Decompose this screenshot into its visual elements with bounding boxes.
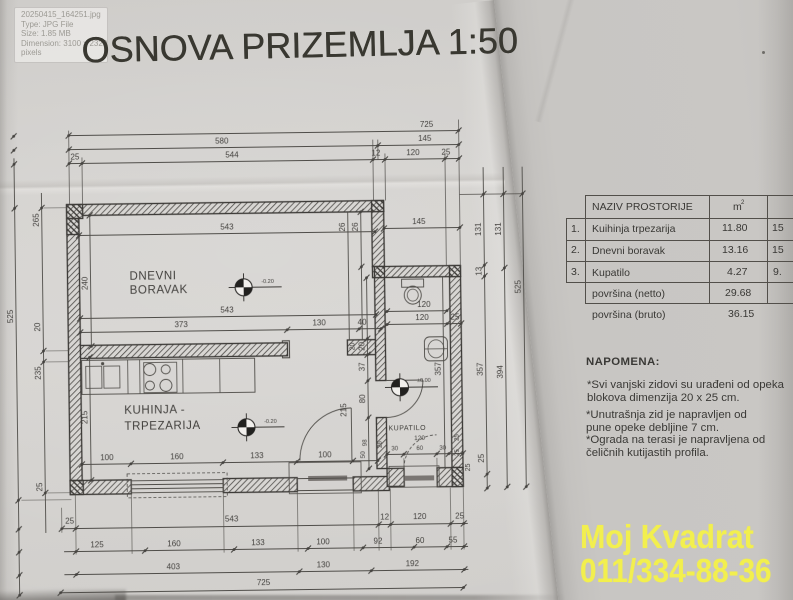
svg-text:25: 25 (70, 152, 80, 161)
svg-text:±0.00: ±0.00 (417, 378, 431, 384)
svg-text:20: 20 (33, 322, 42, 332)
svg-text:120: 120 (414, 435, 425, 442)
svg-text:25: 25 (451, 313, 461, 322)
svg-text:120: 120 (415, 313, 429, 322)
svg-text:125: 125 (90, 540, 104, 549)
svg-text:544: 544 (225, 150, 239, 159)
svg-text:25: 25 (65, 517, 75, 526)
svg-text:215: 215 (339, 403, 348, 417)
svg-text:394: 394 (496, 365, 505, 379)
svg-text:25: 25 (455, 434, 461, 441)
svg-text:240: 240 (80, 276, 89, 290)
svg-text:725: 725 (420, 120, 434, 129)
svg-text:BORAVAK: BORAVAK (130, 284, 188, 297)
svg-text:TRPEZARIJA: TRPEZARIJA (124, 420, 200, 433)
svg-text:120: 120 (406, 148, 420, 157)
svg-text:133: 133 (250, 451, 264, 460)
svg-text:525: 525 (6, 309, 15, 323)
svg-text:13: 13 (474, 266, 483, 276)
svg-text:26: 26 (378, 441, 384, 448)
svg-text:265: 265 (32, 213, 41, 227)
svg-text:25: 25 (441, 148, 451, 157)
svg-text:25: 25 (477, 453, 486, 463)
svg-text:543: 543 (220, 305, 234, 314)
svg-text:120: 120 (417, 300, 431, 309)
svg-text:98: 98 (363, 439, 369, 446)
svg-text:120: 120 (413, 512, 427, 521)
svg-text:525: 525 (514, 279, 523, 293)
svg-text:100: 100 (100, 453, 114, 462)
svg-text:235: 235 (34, 366, 43, 380)
svg-text:357: 357 (476, 362, 485, 376)
svg-text:100: 100 (318, 450, 332, 459)
svg-text:160: 160 (167, 539, 181, 548)
svg-text:-0.20: -0.20 (264, 419, 277, 425)
svg-text:12: 12 (380, 512, 390, 521)
svg-text:160: 160 (170, 452, 184, 461)
svg-text:725: 725 (257, 578, 271, 587)
svg-text:DNEVNI: DNEVNI (129, 270, 176, 283)
svg-text:25: 25 (455, 449, 461, 456)
svg-text:30: 30 (439, 446, 446, 452)
svg-text:130: 130 (312, 318, 326, 327)
svg-text:192: 192 (406, 559, 420, 568)
svg-text:50: 50 (360, 451, 367, 459)
svg-text:-0.20: -0.20 (261, 279, 274, 285)
svg-text:KUPATILO: KUPATILO (388, 425, 426, 432)
svg-text:215: 215 (80, 410, 89, 424)
svg-text:60: 60 (416, 446, 423, 452)
svg-text:55: 55 (448, 536, 458, 545)
svg-text:20: 20 (349, 342, 356, 350)
svg-text:100: 100 (316, 537, 330, 546)
svg-text:80: 80 (358, 394, 367, 404)
svg-text:131: 131 (474, 222, 483, 236)
svg-text:60: 60 (415, 536, 425, 545)
svg-text:25: 25 (465, 463, 472, 471)
svg-text:92: 92 (373, 537, 383, 546)
svg-text:133: 133 (251, 538, 265, 547)
svg-text:580: 580 (215, 137, 229, 146)
svg-text:26: 26 (338, 222, 347, 232)
svg-text:543: 543 (225, 514, 239, 523)
svg-text:373: 373 (174, 320, 188, 329)
svg-text:25: 25 (35, 482, 44, 492)
svg-text:KUHINJA -: KUHINJA - (124, 404, 185, 417)
svg-text:37: 37 (358, 362, 367, 372)
svg-text:30: 30 (391, 446, 398, 452)
svg-text:403: 403 (167, 562, 181, 571)
svg-text:20: 20 (357, 341, 366, 351)
svg-text:26: 26 (351, 222, 360, 232)
svg-text:357: 357 (434, 362, 443, 376)
svg-text:543: 543 (220, 222, 234, 231)
svg-text:131: 131 (494, 222, 503, 236)
svg-text:145: 145 (418, 134, 432, 143)
svg-text:25: 25 (455, 511, 465, 520)
svg-text:130: 130 (317, 560, 331, 569)
svg-text:145: 145 (412, 217, 426, 226)
